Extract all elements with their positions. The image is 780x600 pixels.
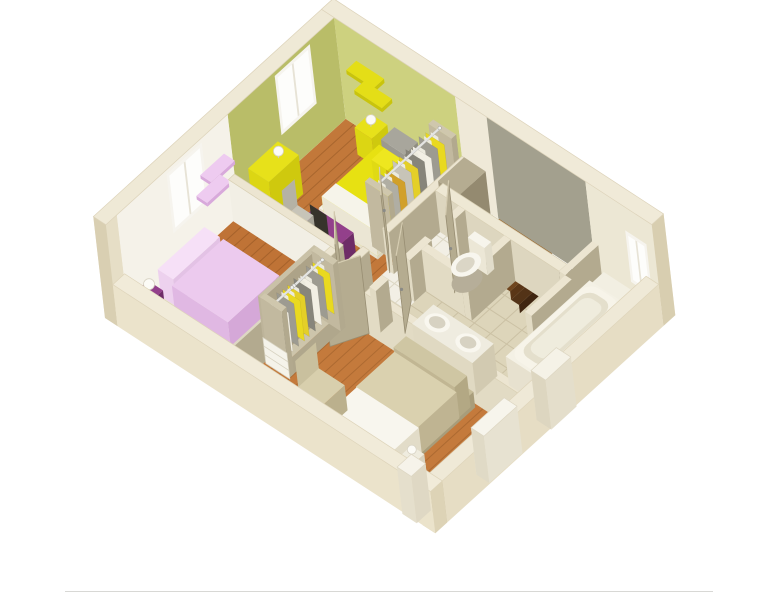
page-background — [0, 0, 780, 600]
page-bottom-rule — [65, 591, 713, 592]
floor-plan-3d-render — [0, 0, 780, 600]
